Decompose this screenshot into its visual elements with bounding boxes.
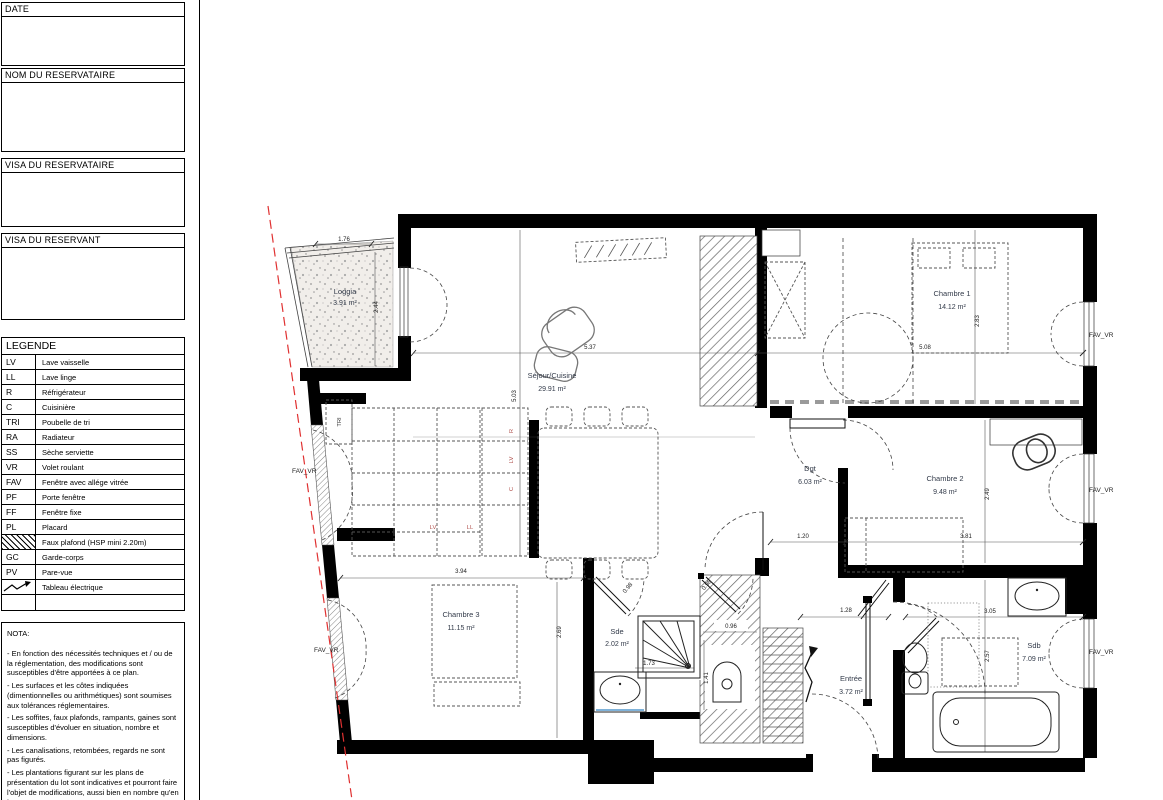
- legend-row-pf: PFPorte fenêtre: [2, 490, 184, 505]
- nota-line: - Les plantations figurant sur les plans…: [7, 768, 179, 800]
- field-visa-reservant-label: VISA DU RESERVANT: [2, 234, 184, 248]
- nota-line: - Les soffites, faux plafonds, rampants,…: [7, 713, 179, 742]
- entry-door-leaf: [863, 596, 872, 706]
- floor-plan-page: Loggia 3.91 m² Séjour/Cuisine 29.91 m² C…: [0, 0, 1163, 800]
- field-date-label: DATE: [2, 3, 184, 17]
- dim-door-sde: 0.98: [622, 581, 635, 594]
- dim-loggia-width: 1.76: [338, 237, 350, 243]
- dim-loggia-depth: 2.44: [374, 301, 380, 313]
- room-label-sdb: Sdb: [1027, 641, 1040, 650]
- dim-dgt-width: 1.20: [797, 534, 809, 540]
- door-arcs: [313, 238, 1083, 760]
- legend-row-tableau: Tableau électrique: [2, 580, 184, 595]
- dim-chambre2-depth: 2.49: [985, 488, 991, 500]
- legend-row-faux-plafond: Faux plafond (HSP mini 2.20m): [2, 535, 184, 550]
- dim-sde-width: 1.73: [643, 661, 655, 667]
- legend-row-c: CCuisinière: [2, 400, 184, 415]
- legend-row-gc: GCGarde-corps: [2, 550, 184, 565]
- room-label-loggia: Loggia: [334, 287, 357, 296]
- nota-box: NOTA: - En fonction des nécessités techn…: [1, 622, 185, 800]
- window-label-chambre2: FAV_VR: [1089, 487, 1114, 494]
- legend-row-ll: LLLave linge: [2, 370, 184, 385]
- title-block-separator: [199, 0, 200, 800]
- label-dishwasher: LV: [509, 457, 515, 464]
- legend-row-ff: FFFenêtre fixe: [2, 505, 184, 520]
- legend-row-tri: TRIPoubelle de tri: [2, 415, 184, 430]
- dim-chambre3-width: 3.94: [455, 569, 467, 575]
- window-label-sejour-left: FAV_VR: [292, 468, 317, 475]
- nota-title: NOTA:: [7, 629, 179, 639]
- bed-chambre3: [432, 585, 520, 706]
- faux-plafond-areas: [699, 236, 1083, 743]
- dim-sejour-depth: 5.03: [512, 390, 518, 402]
- dim-chambre3-depth: 2.69: [557, 626, 563, 638]
- toilet-sdb-icon: [902, 643, 928, 694]
- room-area-entree: 3.72 m²: [839, 689, 863, 696]
- desk-chambre2: [990, 419, 1082, 445]
- room-label-entree: Entrée: [840, 674, 862, 683]
- room-area-dgt: 6.03 m²: [798, 479, 822, 486]
- legend-title: LEGENDE: [2, 338, 184, 355]
- label-washer: LL: [467, 525, 474, 531]
- room-label-dgt: Dgt: [804, 464, 817, 473]
- wall-niche: [762, 230, 800, 256]
- legend-row-ss: SSSèche serviette: [2, 445, 184, 460]
- label-tri: TRI: [337, 417, 343, 427]
- gaine-box: [765, 262, 805, 338]
- legend-row-pl: PLPlacard: [2, 520, 184, 535]
- legend-row-vr: VRVolet roulant: [2, 460, 184, 475]
- legend-table: LEGENDE LVLave vaisselle LLLave linge RR…: [1, 337, 185, 611]
- room-label-sejour: Séjour/Cuisine: [528, 371, 577, 380]
- legend-row-lv: LVLave vaisselle: [2, 355, 184, 370]
- field-visa-reservataire-label: VISA DU RESERVATAIRE: [2, 159, 184, 173]
- dim-chambre1-width: 5.08: [919, 345, 931, 351]
- legend-row-pv: PVPare-vue: [2, 565, 184, 580]
- electrical-panel-icon: [2, 580, 34, 594]
- field-visa-reservant: VISA DU RESERVANT: [1, 233, 185, 320]
- chambre1-placard-circle: [823, 313, 913, 403]
- dim-chambre2-width: 3.81: [960, 534, 972, 540]
- dim-wc-depth: 1.41: [704, 672, 710, 684]
- field-date: DATE: [1, 2, 185, 66]
- bed-chambre2: [845, 518, 963, 572]
- shower-icon: [638, 616, 700, 678]
- dim-sejour-width: 5.37: [584, 345, 596, 351]
- room-label-chambre1: Chambre 1: [933, 289, 970, 298]
- room-area-chambre3: 11.15 m²: [447, 625, 475, 632]
- legend-row-ra: RARadiateur: [2, 430, 184, 445]
- field-nom-reservataire: NOM DU RESERVATAIRE: [1, 68, 185, 152]
- label-cooker: C: [509, 487, 515, 491]
- legend-row-r: RRéfrigérateur: [2, 385, 184, 400]
- label-dishwasher2: LV: [430, 525, 437, 531]
- fixtures: [594, 578, 1066, 752]
- legend-row-fav: FAVFenêtre avec allége vitrée: [2, 475, 184, 490]
- nota-line: - En fonction des nécessités techniques …: [7, 649, 179, 678]
- room-label-sde: Sde: [610, 627, 623, 636]
- dim-wc-width: 0.96: [725, 624, 737, 630]
- window-sejour-left: [311, 425, 334, 545]
- dining-table: [538, 407, 658, 579]
- field-visa-reservataire: VISA DU RESERVATAIRE: [1, 158, 185, 227]
- room-area-sde: 2.02 m²: [605, 641, 629, 648]
- bed-chambre1: [912, 243, 1008, 353]
- nota-line: - Les surfaces et les côtes indiquées (d…: [7, 681, 179, 710]
- window-label-chambre1: FAV_VR: [1089, 332, 1114, 339]
- room-area-sejour: 29.91 m²: [538, 386, 566, 393]
- nota-line: - Les canalisations, retombées, regards …: [7, 746, 179, 766]
- label-fridge: R: [509, 429, 515, 433]
- dim-sdb-depth: 2.57: [985, 650, 991, 662]
- bathtub-icon: [933, 692, 1059, 752]
- faux-plafond-hatch-icon: [2, 535, 36, 549]
- room-label-chambre2: Chambre 2: [926, 474, 963, 483]
- room-label-chambre3: Chambre 3: [442, 610, 479, 619]
- dim-chambre1-depth: 2.83: [975, 315, 981, 327]
- field-nom-reservataire-label: NOM DU RESERVATAIRE: [2, 69, 184, 83]
- room-area-loggia: 3.91 m²: [333, 300, 357, 307]
- chambre1-door-leaf: [790, 419, 845, 428]
- room-area-sdb: 7.09 m²: [1022, 656, 1046, 663]
- room-area-chambre1: 14.12 m²: [938, 304, 966, 311]
- radiator-sejour: [576, 238, 667, 263]
- window-label-chambre3-left: FAV_VR: [314, 647, 339, 654]
- dim-sdb-width: 3.05: [984, 609, 996, 615]
- washbasin-sdb-icon: [1008, 578, 1066, 616]
- legend-row-empty: [2, 595, 184, 610]
- room-area-chambre2: 9.48 m²: [933, 489, 957, 496]
- window-label-sdb: FAV_VR: [1089, 649, 1114, 656]
- tableau-electrique-icon: [805, 646, 818, 702]
- dim-entree-width: 1.28: [840, 608, 852, 614]
